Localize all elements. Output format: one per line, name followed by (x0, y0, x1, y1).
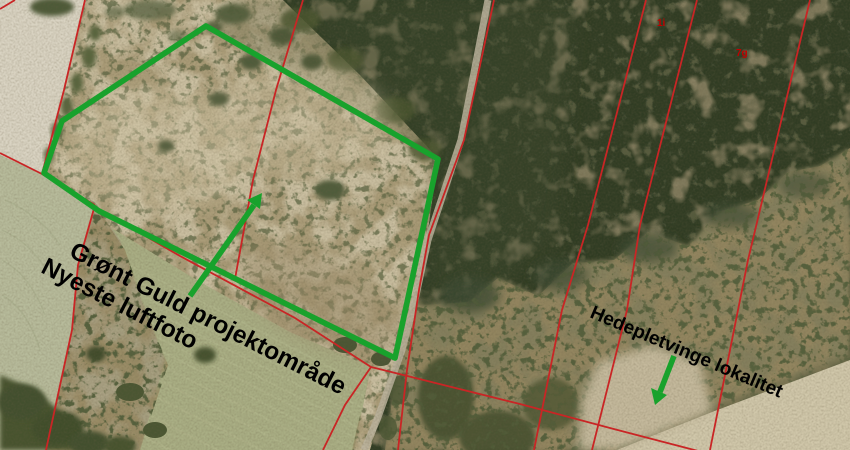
svg-text:7g: 7g (736, 48, 748, 59)
svg-text:1i: 1i (657, 18, 666, 29)
